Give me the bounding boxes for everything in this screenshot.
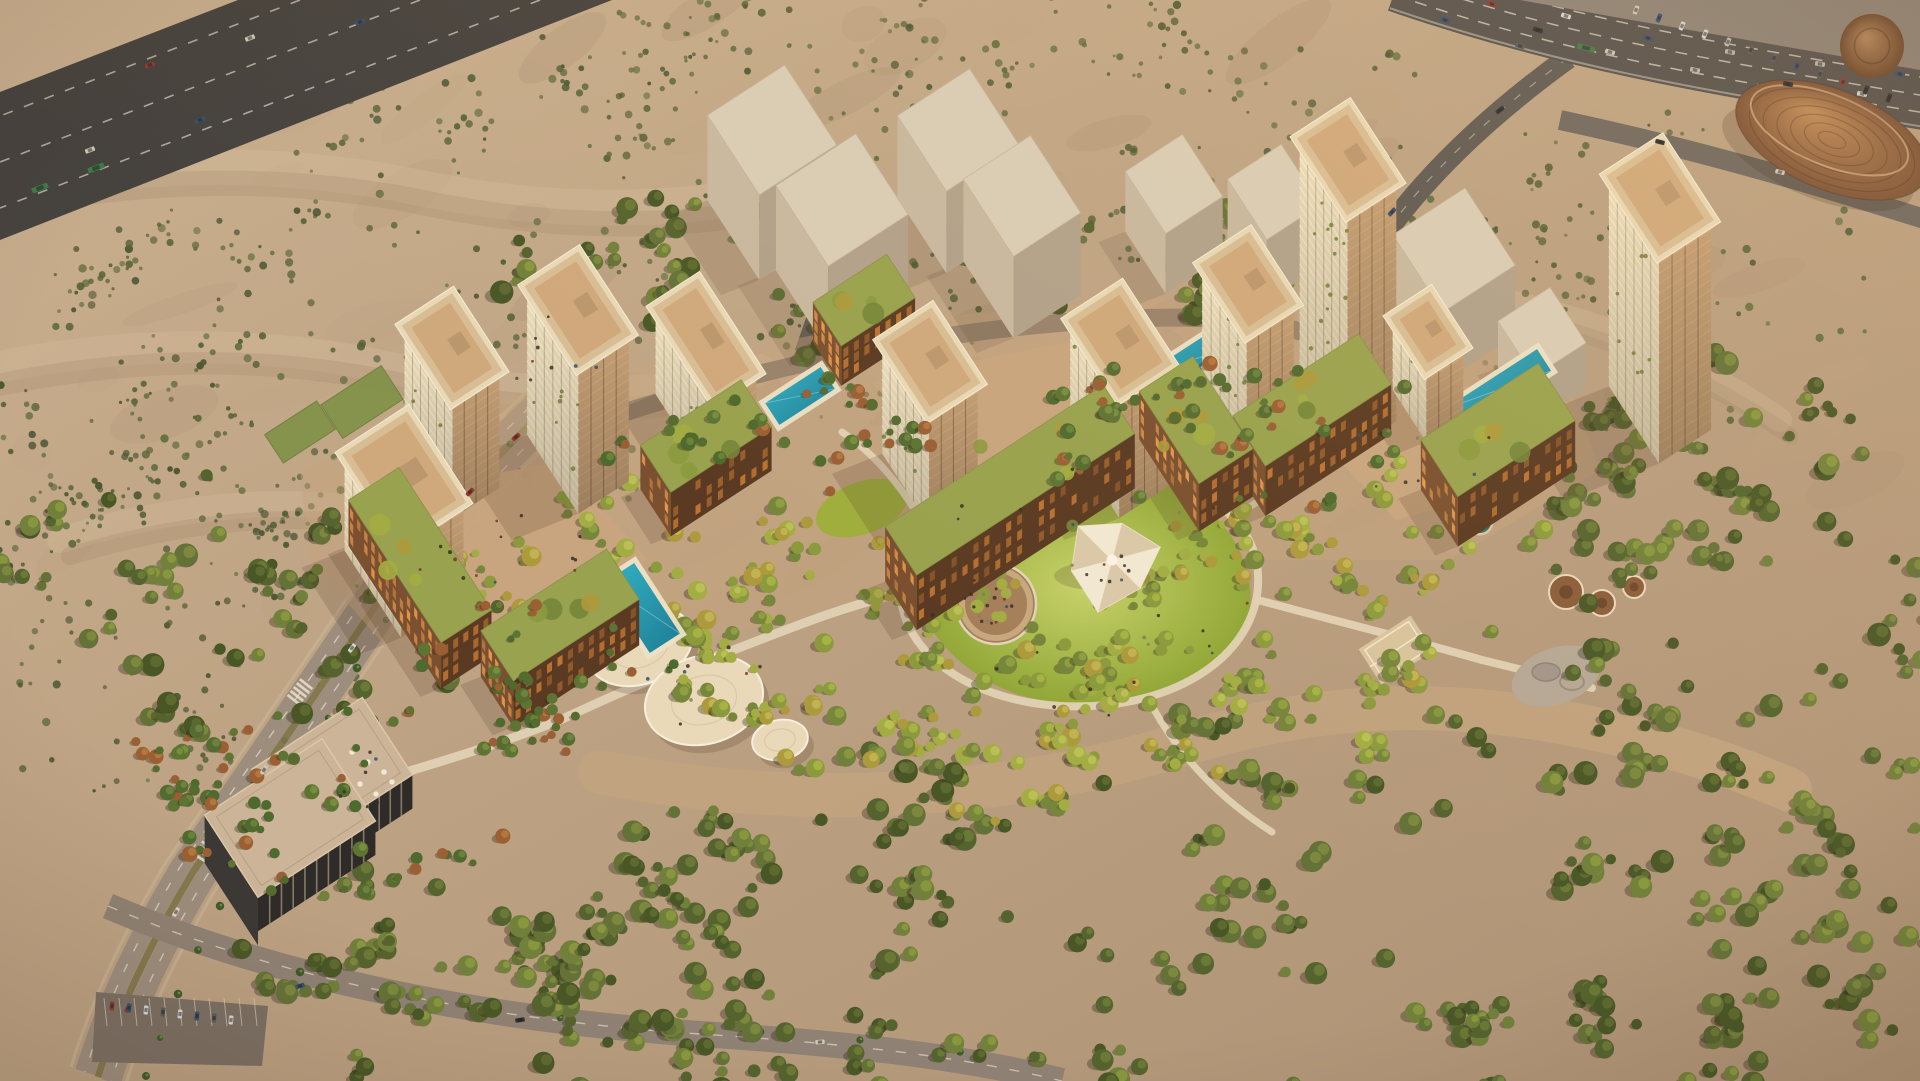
render-canvas [0, 0, 1920, 1081]
aerial-masterplan-render [0, 0, 1920, 1081]
light-overlay [0, 0, 1920, 1081]
